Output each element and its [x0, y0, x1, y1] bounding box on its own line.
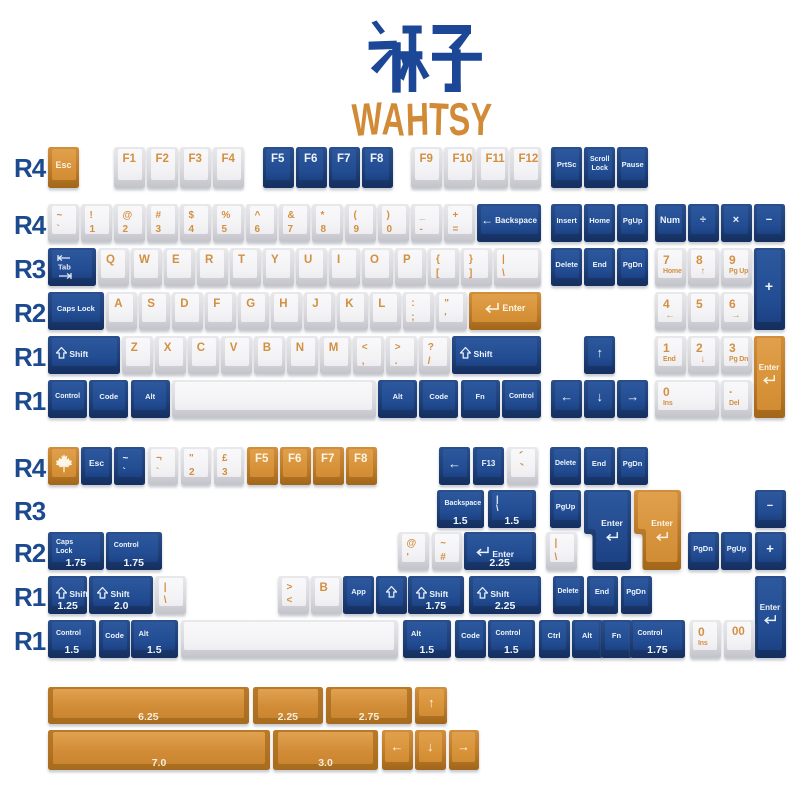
svg-text:Enter: Enter [651, 518, 673, 528]
svg-text:Tab: Tab [58, 263, 71, 272]
svg-text:Enter: Enter [601, 518, 623, 528]
